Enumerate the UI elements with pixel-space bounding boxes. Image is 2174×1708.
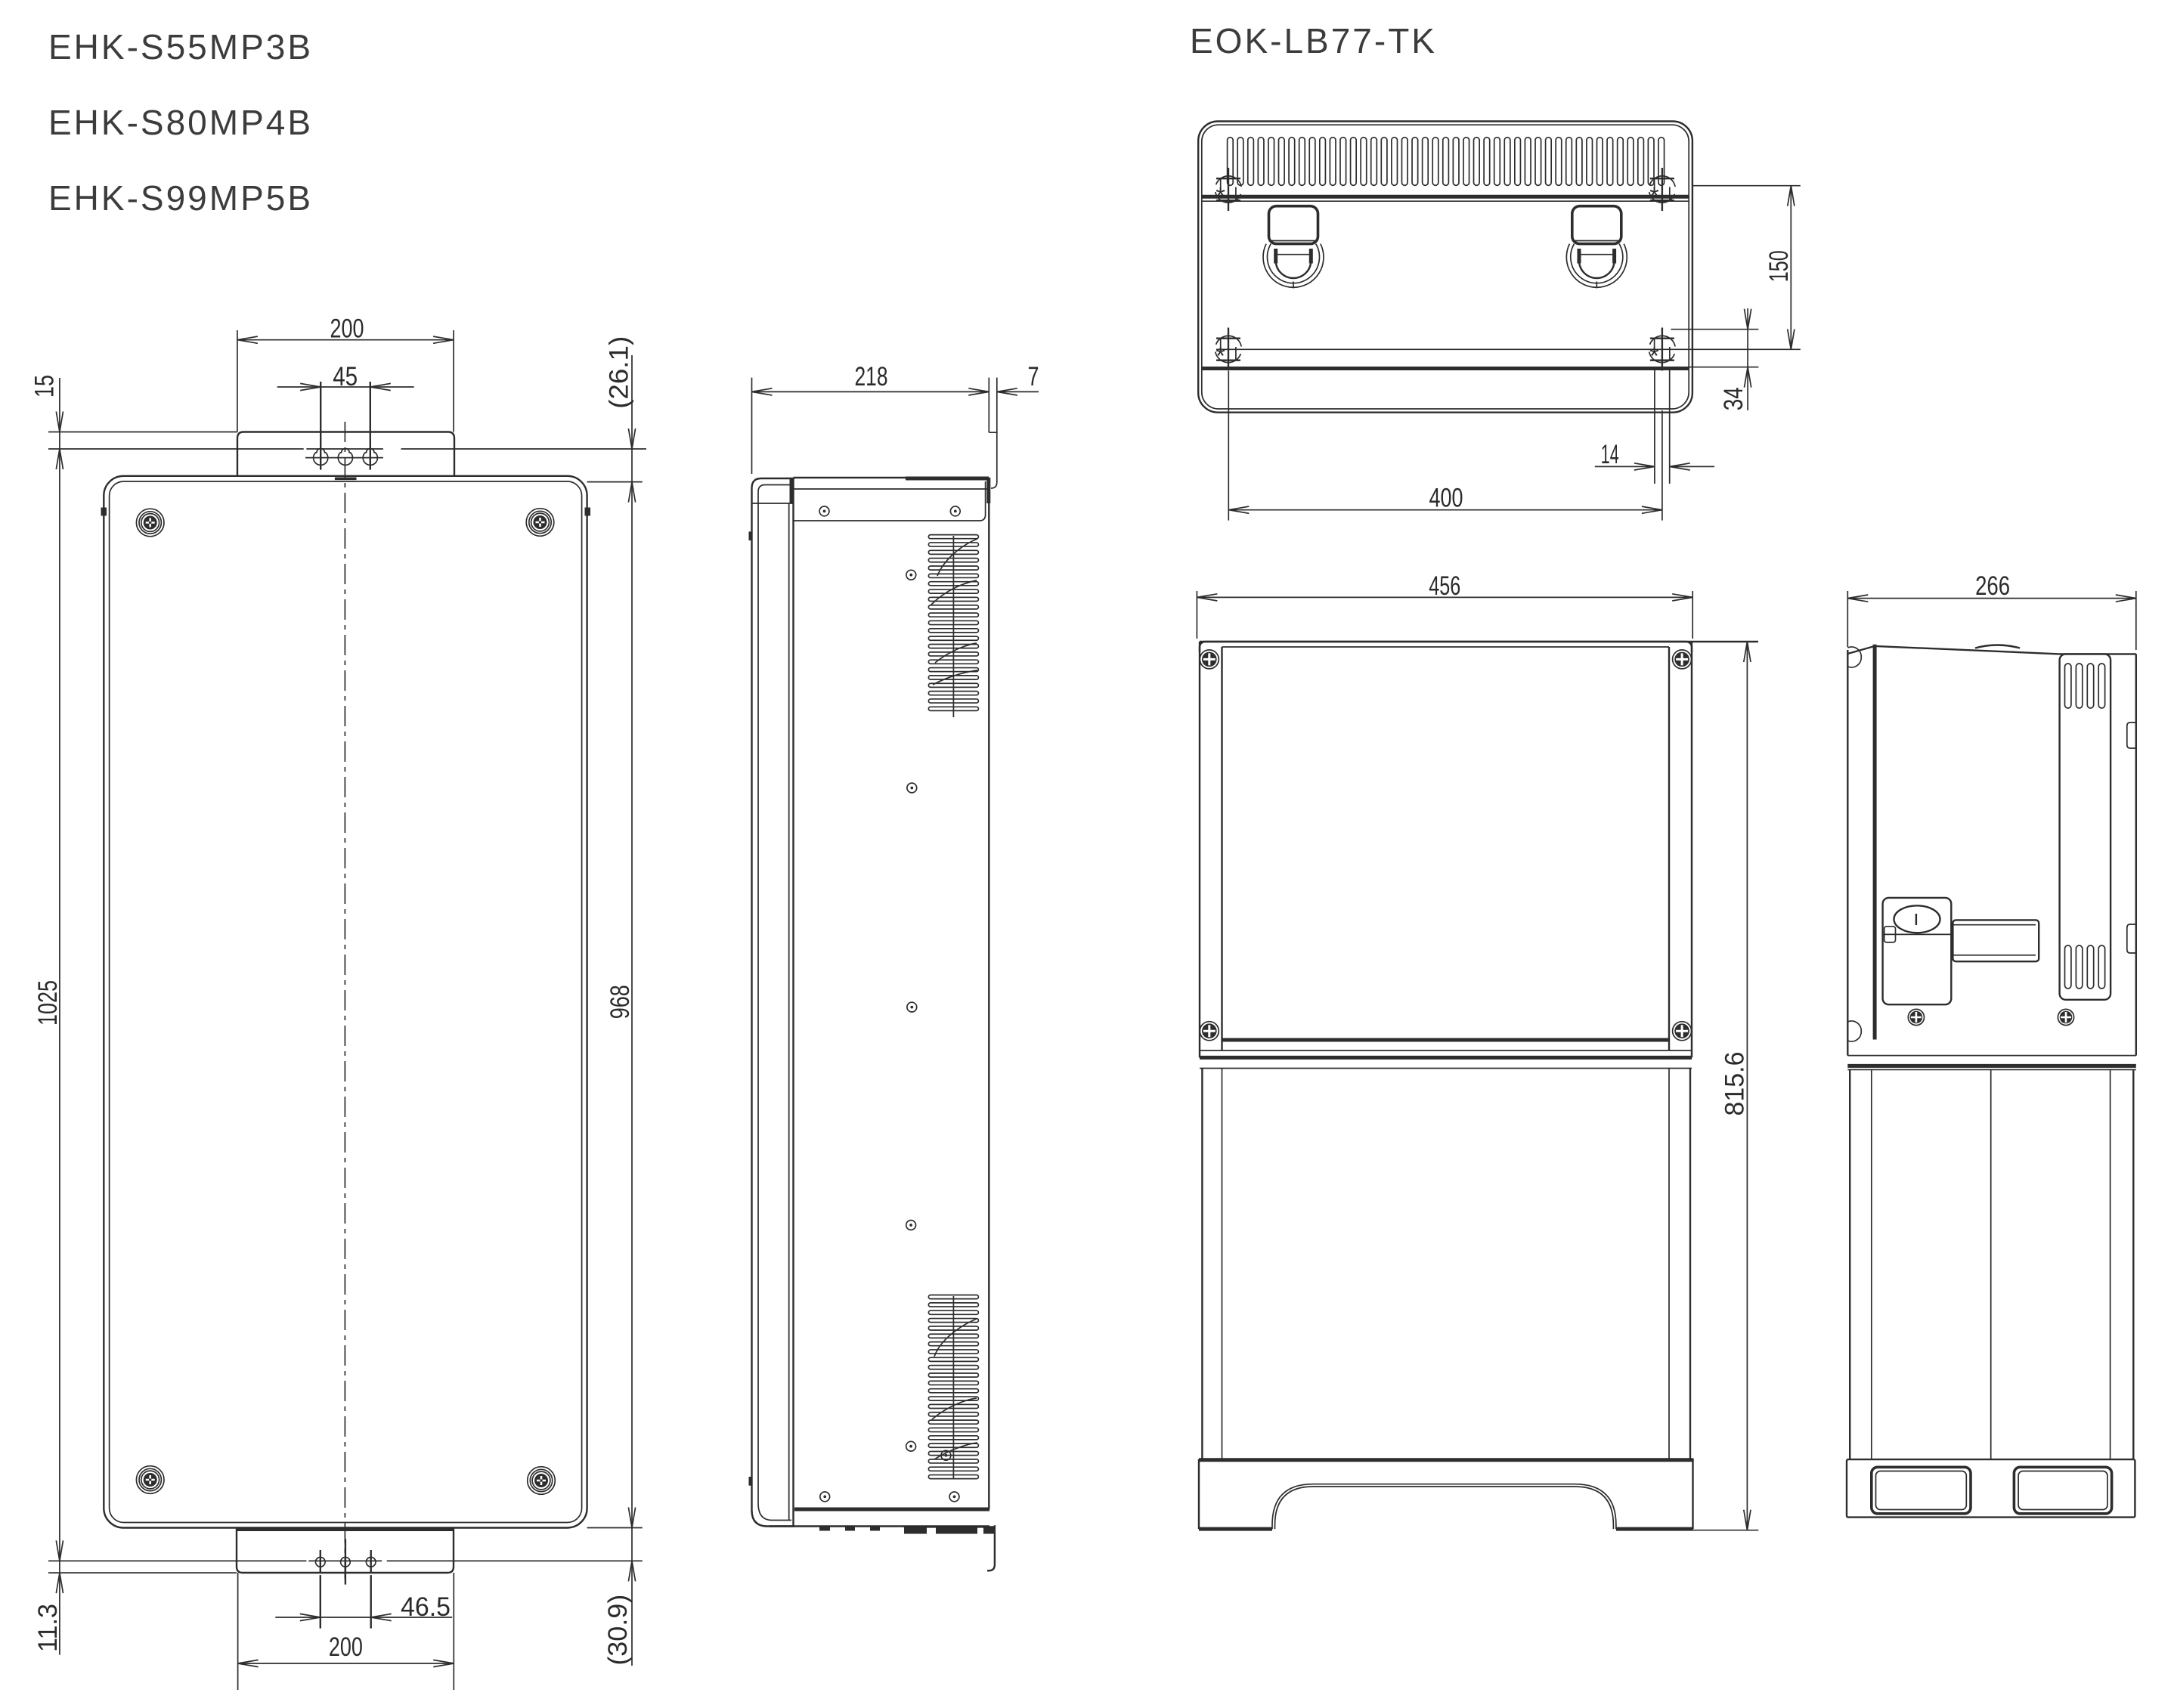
svg-text:*: * bbox=[1216, 183, 1225, 210]
svg-text:200: 200 bbox=[330, 314, 364, 343]
svg-text:1025: 1025 bbox=[33, 980, 63, 1026]
svg-text:EOK-LB77-TK: EOK-LB77-TK bbox=[1190, 21, 1437, 60]
svg-text:968: 968 bbox=[605, 985, 635, 1019]
svg-text:400: 400 bbox=[1429, 484, 1463, 513]
svg-text:14: 14 bbox=[1601, 440, 1619, 469]
svg-text:*: * bbox=[1216, 342, 1225, 370]
svg-text:266: 266 bbox=[1975, 571, 2010, 601]
svg-text:150: 150 bbox=[1764, 250, 1794, 282]
svg-text:EHK-S55MP3B: EHK-S55MP3B bbox=[48, 27, 313, 67]
svg-text:*: * bbox=[1649, 183, 1658, 210]
svg-text:45: 45 bbox=[333, 362, 358, 391]
svg-text:EHK-S99MP5B: EHK-S99MP5B bbox=[48, 178, 313, 218]
svg-text:815.6: 815.6 bbox=[1720, 1052, 1749, 1116]
svg-text:15: 15 bbox=[29, 375, 59, 398]
svg-text:11.3: 11.3 bbox=[33, 1604, 63, 1652]
svg-text:218: 218 bbox=[855, 362, 888, 391]
svg-text:7: 7 bbox=[1028, 362, 1039, 391]
svg-text:(30.9): (30.9) bbox=[603, 1595, 633, 1666]
svg-text:46.5: 46.5 bbox=[401, 1592, 451, 1622]
svg-text:(26.1): (26.1) bbox=[605, 336, 634, 409]
svg-text:*: * bbox=[1649, 342, 1658, 370]
svg-text:200: 200 bbox=[329, 1632, 363, 1662]
svg-text:456: 456 bbox=[1429, 571, 1460, 601]
svg-text:34: 34 bbox=[1719, 387, 1748, 410]
svg-text:EHK-S80MP4B: EHK-S80MP4B bbox=[48, 103, 313, 142]
